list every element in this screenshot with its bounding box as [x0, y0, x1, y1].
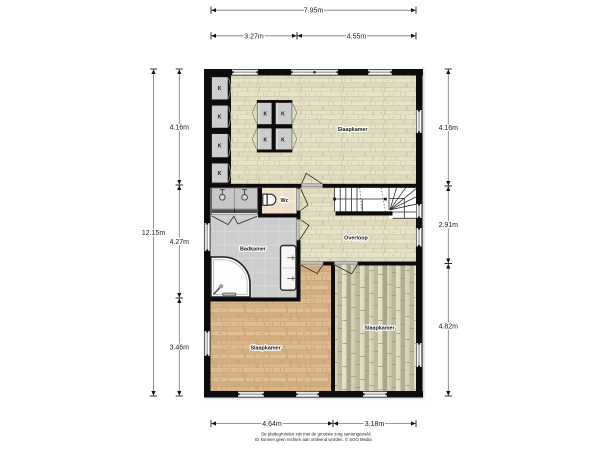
svg-text:Er kunnen geen rechten aan ont: Er kunnen geen rechten aan ontleend word…: [255, 437, 372, 442]
svg-text:12.15m: 12.15m: [142, 230, 166, 237]
svg-text:7.95m: 7.95m: [304, 8, 324, 15]
svg-text:4.16m: 4.16m: [439, 125, 459, 132]
svg-text:Slaapkamer: Slaapkamer: [364, 325, 395, 331]
svg-text:Badkamer: Badkamer: [240, 246, 267, 252]
svg-text:De plattegronden zijn met de g: De plattegronden zijn met de grootste zo…: [261, 431, 371, 436]
svg-text:K: K: [218, 115, 222, 121]
svg-text:3.18m: 3.18m: [365, 421, 385, 428]
svg-text:2.91m: 2.91m: [439, 222, 459, 229]
svg-text:Overloop: Overloop: [344, 235, 368, 241]
svg-text:4.82m: 4.82m: [439, 323, 459, 330]
svg-text:K: K: [218, 171, 222, 177]
svg-text:Slaapkamer: Slaapkamer: [250, 345, 281, 351]
svg-text:K: K: [263, 137, 267, 143]
svg-text:4.27m: 4.27m: [170, 239, 190, 246]
svg-text:K: K: [263, 111, 267, 117]
svg-text:4.16m: 4.16m: [170, 124, 190, 131]
svg-text:K: K: [281, 111, 285, 117]
svg-text:4.64m: 4.64m: [262, 421, 282, 428]
svg-text:K: K: [281, 137, 285, 143]
svg-text:K: K: [218, 86, 222, 92]
svg-text:3.46m: 3.46m: [170, 344, 190, 351]
svg-text:3.27m: 3.27m: [244, 33, 264, 40]
svg-text:Slaapkamer: Slaapkamer: [337, 127, 368, 133]
svg-text:K: K: [218, 144, 222, 150]
svg-text:Wc: Wc: [281, 198, 289, 204]
svg-text:4.55m: 4.55m: [347, 33, 367, 40]
